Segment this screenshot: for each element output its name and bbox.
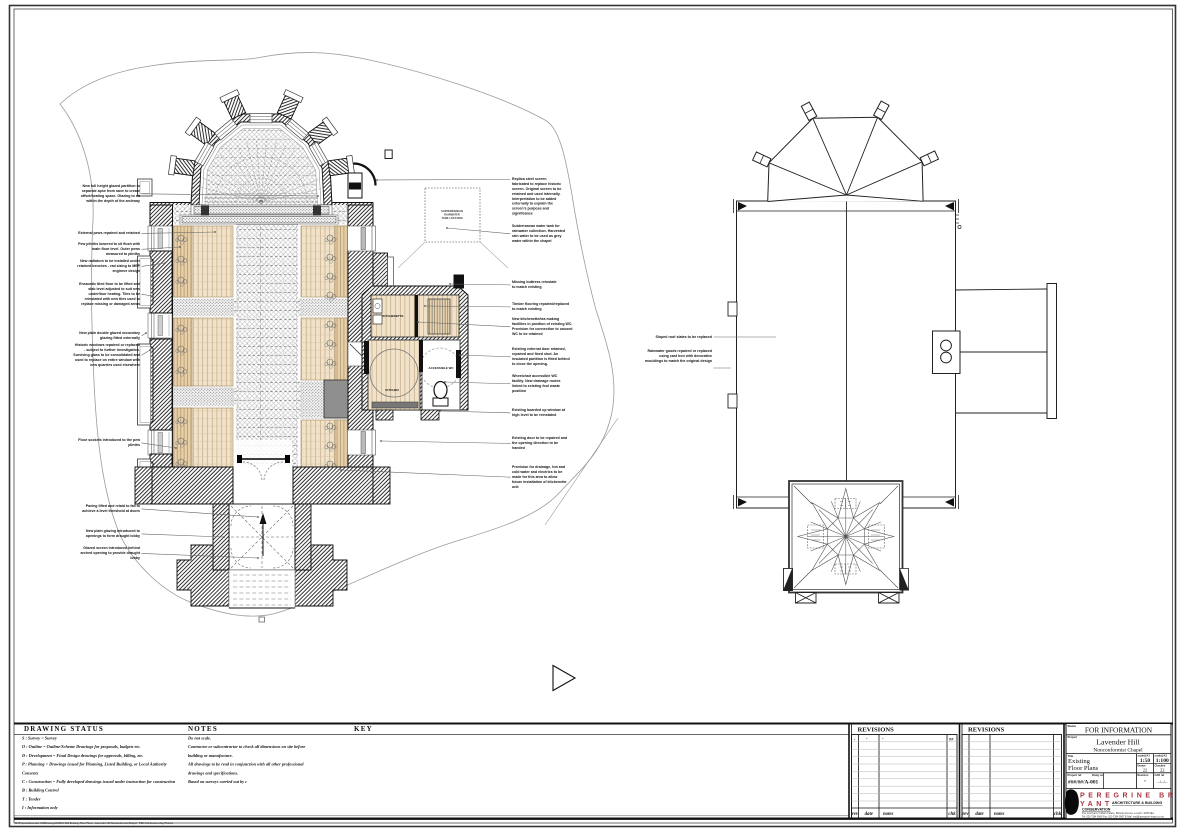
svg-text:cold water and electrics to be: cold water and electrics to be	[512, 470, 562, 474]
svg-text:to match existing: to match existing	[512, 285, 542, 289]
svg-text:to close the opening.: to close the opening.	[512, 362, 548, 366]
svg-text:Pew plinths lowered to sit flu: Pew plinths lowered to sit flush with	[78, 242, 140, 246]
svg-text:KITCHENETTE: KITCHENETTE	[383, 314, 404, 318]
svg-text:screen. Original screen to be: screen. Original screen to be	[512, 187, 561, 191]
svg-text:1:100: 1:100	[1156, 758, 1169, 764]
svg-text:facility. New drainage routes: facility. New drainage routes	[512, 379, 560, 383]
svg-text:position: position	[512, 389, 526, 393]
svg-text:date: date	[865, 812, 874, 817]
svg-text:Encaustic tiled floor to be li: Encaustic tiled floor to be lifted and	[79, 282, 140, 286]
svg-text:RAINWATER: RAINWATER	[444, 213, 460, 217]
svg-text:main floor level. Outer pews: main floor level. Outer pews	[92, 247, 140, 251]
svg-text:All drawings to be read in con: All drawings to be read in conjunction w…	[187, 762, 304, 767]
svg-text:Rainwater goods repaired or re: Rainwater goods repaired or replaced	[647, 349, 712, 353]
svg-text:Existing door to be repaired a: Existing door to be repaired and	[512, 436, 567, 440]
svg-text:Nonconformist Chapel: Nonconformist Chapel	[1093, 746, 1143, 753]
svg-text:made for this area to allow: made for this area to allow	[512, 475, 558, 479]
svg-text:the opening direction to be: the opening direction to be	[512, 441, 558, 445]
svg-text:reinstated with new tiles used: reinstated with new tiles used to	[85, 297, 141, 301]
svg-text:building or manufacture.: building or manufacture.	[188, 753, 233, 758]
svg-text:CONSERVATION: CONSERVATION	[1082, 808, 1111, 812]
svg-text:date: date	[975, 812, 984, 817]
svg-text:D : Development = Final De: D : Development = Final Design drawings …	[21, 753, 143, 758]
svg-text:openings to form draught lobby: openings to form draught lobby	[86, 534, 140, 538]
svg-text:glazing fitted externally: glazing fitted externally	[100, 336, 140, 340]
svg-text:significance: significance	[512, 212, 533, 216]
svg-text:Floor Plans: Floor Plans	[1068, 765, 1099, 772]
svg-text:Drwg no: Drwg no	[1092, 773, 1103, 777]
svg-text:Contractor or subcontractor to: Contractor or subcontractor to check all…	[188, 744, 305, 749]
svg-text:insulated partition is fitted: insulated partition is fitted behind	[512, 357, 570, 361]
svg-text:S : Survey = Survey: S : Survey = Survey	[22, 736, 57, 741]
svg-text:B : Building Control: B : Building Control	[21, 788, 59, 793]
svg-text:notes: notes	[883, 812, 894, 817]
svg-text:linked to existing foul waste: linked to existing foul waste	[512, 384, 560, 388]
svg-text:handed: handed	[512, 446, 525, 450]
svg-text:rev: rev	[962, 812, 969, 817]
svg-text:PEREGRINE BR: PEREGRINE BR	[1080, 793, 1177, 800]
svg-text:future installation of kitchen: future installation of kitchenette	[512, 480, 567, 484]
svg-text:Wheelchair accessible WC: Wheelchair accessible WC	[512, 374, 558, 378]
svg-text:22: 22	[1143, 767, 1148, 772]
svg-text:water within the chapel: water within the chapel	[511, 239, 552, 243]
svg-text:Floor sockets introduced to th: Floor sockets introduced to the pew	[78, 438, 140, 442]
svg-text:screen's purpose and: screen's purpose and	[512, 207, 549, 211]
svg-text:TANK LOCATION: TANK LOCATION	[441, 216, 462, 220]
svg-text:retained and used internally.: retained and used internally.	[512, 192, 560, 196]
svg-text:Consents: Consents	[22, 770, 39, 775]
svg-text:*: *	[1144, 779, 1146, 784]
svg-text:measured to plinths: measured to plinths	[106, 252, 140, 256]
svg-text:Lavender Hill: Lavender Hill	[1096, 737, 1140, 746]
svg-text:Existing external door retaine: Existing external door retained,	[512, 347, 566, 351]
svg-text:separate apse from nave to cre: separate apse from nave to create	[82, 189, 140, 193]
svg-text:Paving lifted and relaid to fa: Paving lifted and relaid to fall to	[86, 504, 141, 508]
svg-text:Interpretation to be added: Interpretation to be added	[512, 197, 556, 201]
svg-text:New full height glazed partiti: New full height glazed partition to	[83, 184, 141, 188]
svg-text:ARCHITECTURE & BUILDING: ARCHITECTURE & BUILDING	[1112, 801, 1163, 805]
svg-text:retained benches - rad sizing: retained benches - rad sizing to MEP	[77, 264, 140, 268]
svg-text:Revision: Revision	[1138, 773, 1149, 777]
svg-text:FOR INFORMATION: FOR INFORMATION	[1085, 725, 1153, 734]
svg-text:.: .	[854, 736, 855, 741]
svg-text:Do not scale.: Do not scale.	[187, 736, 211, 741]
svg-text:-: -	[866, 736, 868, 741]
svg-text:SUBTERRANEAN: SUBTERRANEAN	[441, 209, 463, 213]
svg-text:new quarries used elsewhere: new quarries used elsewhere	[90, 363, 140, 367]
svg-text:New plain double glazed second: New plain double glazed secondary	[79, 331, 140, 335]
svg-text:within the depth of the archwa: within the depth of the archway	[85, 199, 140, 203]
svg-text:used to replace on entire wind: used to replace on entire window with	[75, 358, 140, 362]
svg-text:T : Tender: T : Tender	[22, 796, 41, 801]
svg-text:##: ##	[949, 737, 954, 742]
svg-text:externally to explain the: externally to explain the	[512, 202, 553, 206]
svg-text:rev: rev	[852, 812, 859, 817]
svg-text:NOTES: NOTES	[188, 725, 218, 733]
svg-text:New kitchenette/tea making: New kitchenette/tea making	[512, 317, 559, 321]
svg-text:Subterranean water tank for: Subterranean water tank for	[512, 224, 560, 228]
svg-text:Tel: 020 7384 9966 Fax: 020 7: Tel: 020 7384 9966 Fax: 020 7384 9967 E-…	[1082, 815, 1165, 818]
svg-text:- subject to further investiga: - subject to further investigation.	[84, 348, 140, 352]
svg-text:achieve a level threshold at d: achieve a level threshold at doors	[82, 509, 140, 513]
svg-text:plinths: plinths	[128, 443, 140, 447]
svg-text:Provision for drainage, hot an: Provision for drainage, hot and	[512, 465, 565, 469]
svg-text:repaired and fixed shut. An: repaired and fixed shut. An	[512, 352, 558, 356]
svg-text:Sloped roof slates to be repla: Sloped roof slates to be replaced	[655, 335, 712, 339]
svg-text:ACCESSIBLE WC: ACCESSIBLE WC	[428, 366, 454, 370]
svg-text:External pews repaired and ret: External pews repaired and retained	[78, 231, 140, 235]
svg-text:Replica steel screen: Replica steel screen	[512, 177, 547, 181]
svg-text:KITCHEN: KITCHEN	[385, 388, 398, 392]
svg-text:New radiators to be installed: New radiators to be installed under	[80, 259, 141, 263]
svg-text:fabricated to replace historic: fabricated to replace historic	[512, 182, 561, 186]
svg-text:New plain glazing introduced t: New plain glazing introduced to	[86, 529, 141, 533]
svg-text:slab level adjusted to suit ne: slab level adjusted to suit new	[88, 287, 140, 291]
svg-text:Provision for connection to un: Provision for connection to unused	[512, 327, 573, 331]
svg-text:I : Information only: I : Information only	[21, 805, 58, 810]
svg-text:CAD ref: CAD ref	[1155, 773, 1165, 777]
svg-text:O : Outline = Outline/Sche: O : Outline = Outline/Scheme Drawings fo…	[22, 744, 141, 749]
svg-text:--/--/--: --/--/--	[1157, 779, 1168, 784]
svg-text:high level to be reinstated: high level to be reinstated	[512, 413, 556, 417]
svg-text:rainwater collection. Harveste: rainwater collection. Harvested	[512, 229, 565, 233]
svg-text:Timber flooring repaired/repla: Timber flooring repaired/replaced	[512, 302, 569, 306]
svg-text:notes: notes	[994, 812, 1005, 817]
svg-text:Surviving glass to be consolid: Surviving glass to be consolidated and	[73, 353, 140, 357]
svg-text:Historic windows repaired or r: Historic windows repaired or replaced	[75, 343, 140, 347]
svg-text:Glazed screen introduced behin: Glazed screen introduced behind	[83, 546, 140, 550]
svg-text:mouldings to match the origina: mouldings to match the original design	[645, 359, 712, 363]
svg-text:M:\Projects\Lavender Hill\Draw: M:\Projects\Lavender Hill\Drawings\CAD\A…	[15, 821, 173, 825]
svg-text:arched opening to provide drau: arched opening to provide draught	[81, 551, 141, 555]
svg-text:Status: Status	[1068, 724, 1077, 728]
svg-text:C : Construction = Fully d: C : Construction = Fully developed drawi…	[22, 779, 176, 784]
svg-text:chk: chk	[948, 812, 956, 817]
svg-text:chk: chk	[1054, 812, 1062, 817]
svg-text:P : Planning = Drawings is: P : Planning = Drawings issued for Plann…	[22, 762, 167, 767]
svg-text:underfloor heating. Tiles to b: underfloor heating. Tiles to be	[89, 292, 140, 296]
svg-text:to match existing: to match existing	[512, 307, 542, 311]
svg-text:lobby: lobby	[130, 556, 140, 560]
svg-text:offset/heating space. Glazing: offset/heating space. Glazing to sit	[81, 194, 141, 198]
svg-text:rain water to be used as grey: rain water to be used as grey	[512, 234, 562, 238]
svg-text:DRAWING STATUS: DRAWING STATUS	[24, 725, 104, 733]
svg-text:Project ref: Project ref	[1068, 773, 1082, 777]
svg-text:REVISIONS: REVISIONS	[858, 727, 895, 734]
svg-text:facilities in position of exis: facilities in position of existing WC.	[512, 322, 573, 326]
svg-text:KEY: KEY	[354, 725, 373, 733]
svg-text:drawings and specifications.: drawings and specifications.	[188, 770, 238, 775]
svg-text:Missing buttress reinstate: Missing buttress reinstate	[512, 280, 557, 284]
svg-text:unit: unit	[512, 485, 519, 489]
svg-text:replace missing or damaged are: replace missing or damaged areas	[81, 302, 140, 306]
svg-text:engineer design: engineer design	[112, 269, 140, 273]
svg-text:###/##/A-001: ###/##/A-001	[1068, 779, 1099, 785]
svg-text:using cast iron with decorativ: using cast iron with decorative	[659, 354, 712, 358]
svg-text:Existing: Existing	[1068, 758, 1091, 765]
svg-text:REVISIONS: REVISIONS	[968, 727, 1005, 734]
svg-text:-: -	[882, 736, 884, 741]
svg-text:1:50: 1:50	[1140, 758, 1150, 764]
svg-text:Project: Project	[1068, 735, 1078, 739]
svg-text:Based on surveys carried out b: Based on surveys carried out by c	[187, 779, 247, 784]
svg-text:22: 22	[1160, 767, 1165, 772]
svg-text:Existing boarded up window at: Existing boarded up window at	[512, 408, 566, 412]
svg-text:WC to be retained: WC to be retained	[512, 332, 543, 336]
